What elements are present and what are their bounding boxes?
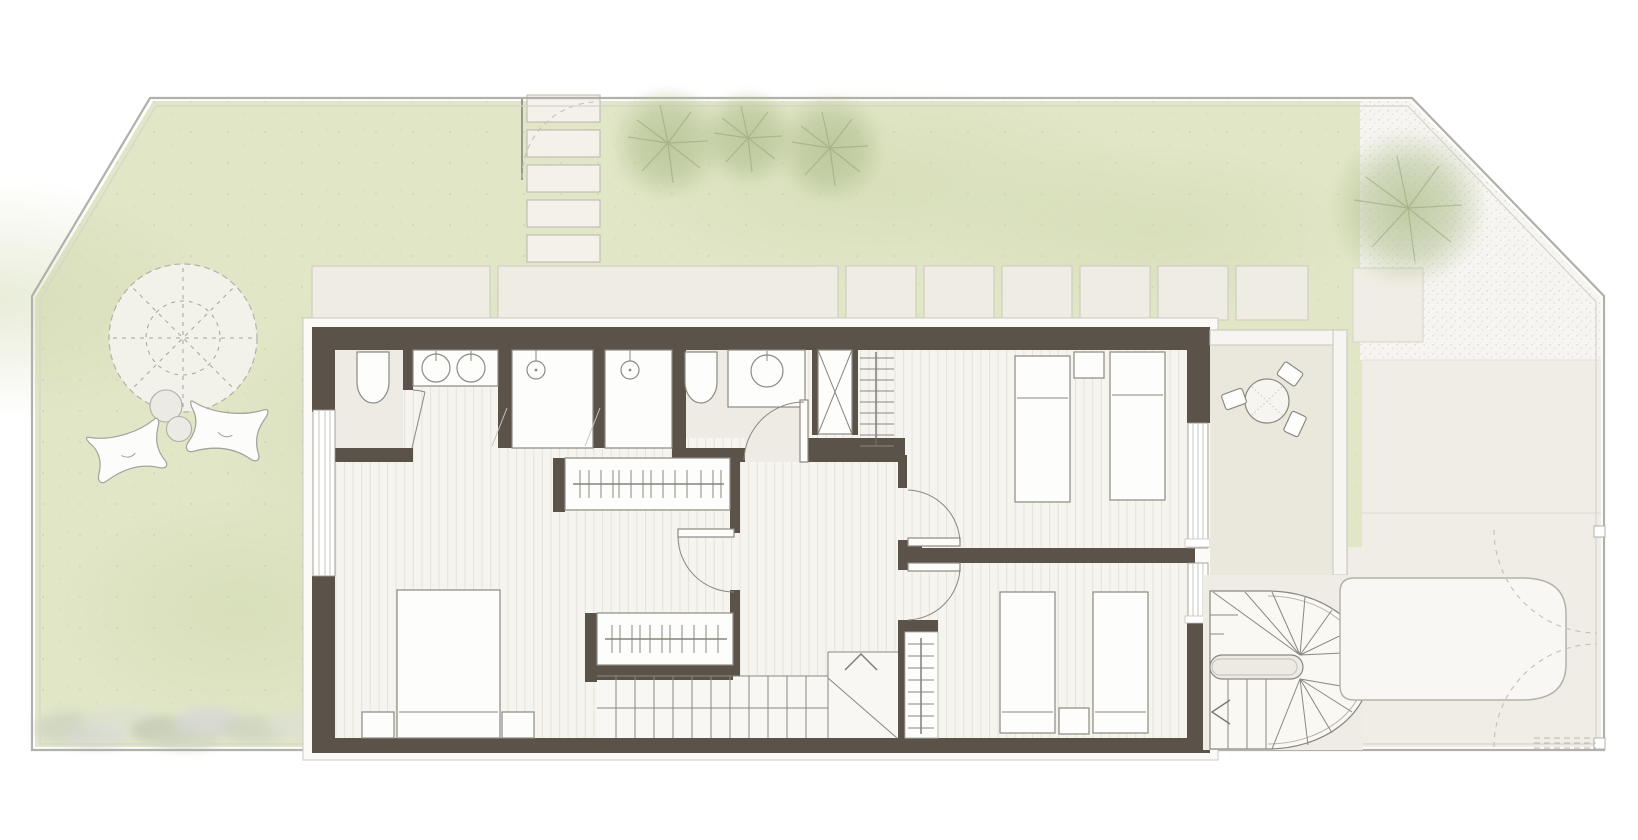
wall-hall-upper — [898, 455, 907, 488]
wall-alcove3-top — [898, 620, 938, 632]
toilet — [357, 352, 389, 403]
single-bed — [1110, 352, 1165, 500]
wall-east-upper — [1187, 327, 1210, 423]
wardrobe-rail — [565, 458, 730, 510]
wall-west-upper — [312, 327, 335, 412]
wall-south — [312, 738, 1210, 753]
wall-shower-divider — [593, 350, 605, 448]
floor-plan-drawing — [0, 0, 1638, 840]
wall-wc-stub — [403, 350, 413, 390]
floor-plan-canvas — [0, 0, 1638, 840]
terrace-parapet-top — [1210, 330, 1333, 345]
floor-bathroom-2-threshold — [745, 438, 803, 462]
double-sink-vanity — [413, 350, 498, 386]
wall-master-door-upper — [730, 462, 740, 533]
wall-shaft-right — [852, 350, 858, 435]
terrace-parapet-right — [1333, 330, 1347, 575]
house — [303, 318, 1218, 760]
wall-wardrobe2-bottom — [597, 665, 733, 680]
wall-bath2-bottom-right — [803, 438, 905, 462]
wardrobe-rail — [597, 613, 733, 665]
window-west — [313, 410, 335, 576]
tree — [774, 92, 886, 204]
sink-vanity — [728, 350, 805, 407]
nightstand — [1074, 352, 1104, 378]
wall-wardrobe2-stub — [585, 613, 597, 682]
parked-car — [1340, 578, 1566, 700]
wall-vanity-shower — [498, 350, 512, 448]
nightstand — [1059, 708, 1089, 734]
wall-shaft-left — [812, 350, 818, 435]
garden-canopy — [109, 264, 257, 412]
wall-bedroom-divider — [922, 548, 1195, 563]
terrace — [1210, 330, 1347, 592]
wall-bath2-left — [672, 350, 686, 448]
outdoor-table — [1245, 379, 1289, 423]
wall-west-lower — [312, 576, 335, 753]
large-tree — [1328, 128, 1488, 288]
service-shaft — [818, 350, 852, 434]
gate-post — [1594, 526, 1605, 537]
nightstand — [502, 712, 534, 738]
single-bed — [1015, 356, 1070, 502]
nightstand — [362, 712, 394, 738]
wall-wc-bottom — [335, 448, 413, 462]
window-east-bedroom2 — [1188, 423, 1208, 548]
paver-terrace — [312, 266, 1308, 320]
stepping-stone-path — [527, 95, 600, 262]
wall-north — [312, 327, 1210, 350]
towel-radiator — [905, 632, 938, 738]
window-jamb — [1185, 539, 1210, 547]
toilet — [685, 352, 717, 403]
wall-wardrobe1-stub — [553, 458, 565, 512]
double-bed — [397, 590, 500, 738]
